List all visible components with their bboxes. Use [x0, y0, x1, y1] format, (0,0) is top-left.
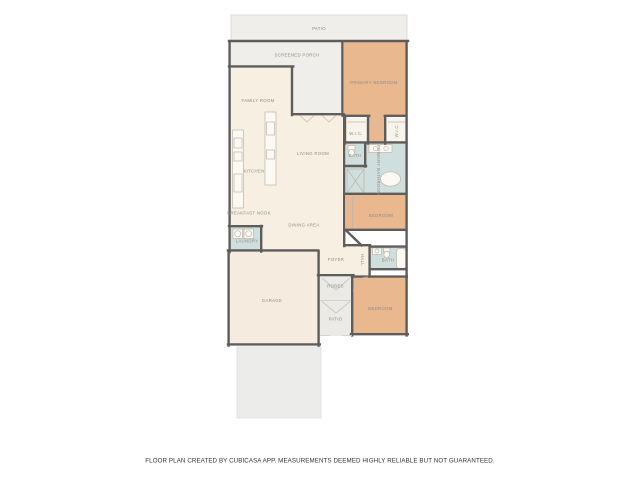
kitchen-fridge: [234, 174, 242, 192]
label-bedroom-middle: BEDROOM: [369, 213, 394, 218]
kitchen-sink: [234, 152, 242, 161]
floor-plan-page: PATIO SCREENED PORCH PRIMARY BEDROOM FAM…: [0, 0, 640, 480]
label-laundry: LAUNDRY: [236, 239, 259, 244]
label-family-room: FAMILY ROOM: [242, 98, 275, 103]
label-hall-bath: BATH: [382, 258, 394, 263]
label-robes: ROBES: [327, 284, 344, 289]
driveway: [237, 347, 321, 418]
label-foyer: FOYER: [328, 257, 344, 262]
label-dining-area: DINING AREA: [288, 223, 319, 228]
disclaimer-text: FLOOR PLAN CREATED BY CUBICASA APP. MEAS…: [145, 458, 495, 465]
room-primary-bedroom: [344, 42, 407, 115]
label-hall: HALL: [360, 254, 365, 266]
label-kitchen: KITCHEN: [243, 169, 264, 174]
label-garage: GARAGE: [262, 298, 282, 303]
label-bedroom-lower: BEDROOM: [368, 306, 393, 311]
label-primary-bathroom: PRIMARY BATHROOM: [376, 145, 381, 195]
label-patio-top: PATIO: [312, 26, 326, 31]
label-breakfast-nook: BREAKFAST NOOK: [227, 211, 271, 216]
floor-plan-drawing: PATIO SCREENED PORCH PRIMARY BEDROOM FAM…: [0, 0, 640, 480]
label-primary-wc: BATH: [349, 153, 361, 158]
hall-bathtub: [397, 249, 407, 269]
bathtub: [381, 172, 401, 186]
label-patio-bottom: PATIO: [329, 317, 343, 322]
label-wic-right: W.I.C.: [394, 124, 399, 138]
label-wic-left: W.I.C.: [349, 131, 363, 136]
kitchen-appliance: [234, 138, 242, 148]
island-sink: [267, 122, 275, 135]
island-cooktop: [267, 150, 275, 159]
label-primary-bedroom: PRIMARY BEDROOM: [350, 80, 398, 85]
label-living-room: LIVING ROOM: [297, 151, 329, 156]
label-screened-porch: SCREENED PORCH: [274, 53, 319, 58]
